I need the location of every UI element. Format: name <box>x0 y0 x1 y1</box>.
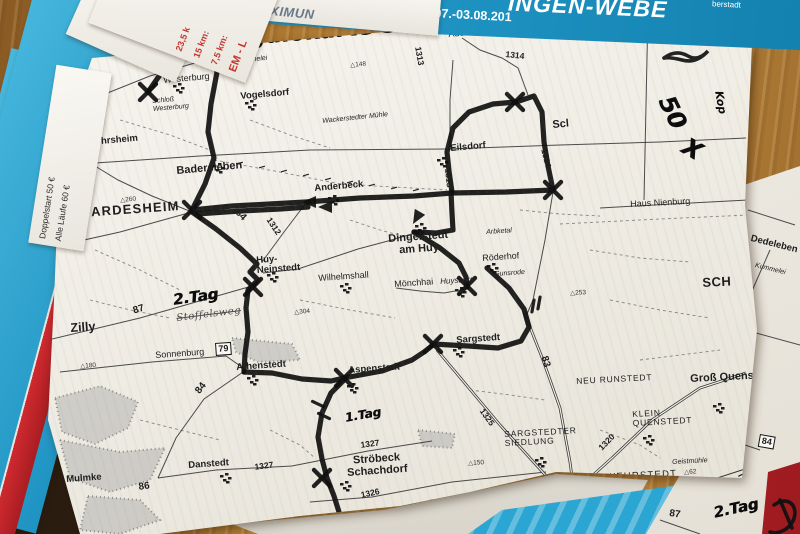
route-x-mark <box>314 470 330 486</box>
map-label-86: 86 <box>138 481 151 493</box>
route-x-mark <box>425 336 441 352</box>
map-label-2-tag: 2.Tag <box>172 286 219 308</box>
map-label-kop: Kop <box>712 90 728 115</box>
town-buildings <box>456 353 460 356</box>
town-buildings <box>440 163 444 166</box>
field-track <box>640 350 720 360</box>
field-track <box>610 300 710 318</box>
town-buildings <box>252 375 256 378</box>
town-buildings <box>420 223 424 226</box>
route-x-mark <box>184 202 200 218</box>
town-buildings <box>350 389 354 392</box>
field-track <box>300 300 395 318</box>
railway-tick <box>259 166 265 168</box>
town-buildings <box>442 157 446 160</box>
town-buildings <box>343 289 347 292</box>
town-buildings <box>453 349 457 352</box>
map-label-zilly: Zilly <box>70 320 96 335</box>
town-buildings <box>220 475 224 478</box>
town-buildings <box>181 87 185 90</box>
town-buildings <box>228 477 232 480</box>
map-label-1326: 1326 <box>360 487 380 500</box>
forest-area <box>232 338 300 362</box>
town-buildings <box>721 407 725 410</box>
town-buildings <box>245 102 249 105</box>
map-label--180: △180 <box>80 362 96 370</box>
map-label--253: △253 <box>570 289 586 297</box>
photo-of-map-on-desk: Alle weiteren Info's und Wettkampfunterl… <box>0 0 800 534</box>
map-label-sargstedt: Sargstedt <box>456 333 500 346</box>
map-label-geistmühle: Geistmühle <box>672 457 708 466</box>
railway-tick <box>778 463 783 466</box>
marker-route <box>414 192 453 233</box>
map-label-1313: 1313 <box>413 46 425 66</box>
route-x-mark <box>507 94 523 110</box>
railway-tick <box>661 502 667 504</box>
town-buildings <box>346 291 350 294</box>
town-buildings <box>331 201 335 204</box>
town-buildings <box>270 278 274 281</box>
town-buildings <box>250 381 254 384</box>
map-label-1327: 1327 <box>254 460 274 472</box>
route-tick-mark <box>319 413 330 418</box>
town-buildings <box>437 159 441 162</box>
town-buildings <box>461 351 465 354</box>
marker-route <box>192 190 553 210</box>
field-track <box>590 250 690 262</box>
route-x-mark <box>314 470 330 486</box>
map-label-1327: 1327 <box>360 438 380 450</box>
town-buildings <box>226 481 230 484</box>
town-buildings <box>540 457 544 460</box>
railway-tick <box>680 493 686 495</box>
town-buildings <box>648 435 652 438</box>
town-buildings <box>223 479 227 482</box>
town-buildings <box>347 385 351 388</box>
map-label--148: △148 <box>350 61 366 69</box>
map-label-sch: SCH <box>702 274 732 290</box>
town-buildings <box>345 481 349 484</box>
map-label-klein-quenstedt: KLEIN QUENSTEDT <box>632 407 693 428</box>
map-label-1312: 1312 <box>264 216 282 237</box>
map-label--304: △304 <box>294 308 310 316</box>
map-label-81: 81 <box>667 483 684 497</box>
town-buildings <box>333 195 337 198</box>
map-label-haus-nienburg: Haus Nienburg <box>630 197 690 210</box>
town-buildings <box>445 161 449 164</box>
major-road-core <box>560 373 746 505</box>
railway-tick <box>758 469 763 472</box>
major-road <box>524 312 577 515</box>
railway-tick <box>325 178 331 180</box>
town-buildings <box>346 489 350 492</box>
map-label-arbketal: Arbketal <box>486 227 512 236</box>
town-buildings <box>643 495 647 498</box>
route-map-sheet: Julokarte Stoffel2.TagStoffelsweg1.Tag50… <box>0 0 800 534</box>
town-buildings <box>651 497 655 500</box>
town-buildings <box>643 437 647 440</box>
town-buildings <box>348 485 352 488</box>
route-tick-mark <box>313 401 324 406</box>
railway-tick <box>738 474 743 477</box>
map-road <box>95 149 447 163</box>
map-label-eilsdorf: Eilsdorf <box>450 141 486 154</box>
town-buildings <box>718 403 722 406</box>
field-track <box>250 120 330 148</box>
town-buildings <box>716 409 720 412</box>
forest-area <box>80 496 160 534</box>
railway-tick <box>303 174 309 176</box>
town-buildings <box>492 263 496 266</box>
field-track <box>520 210 600 216</box>
map-label-1314: 1314 <box>539 148 552 169</box>
route-x-mark <box>507 94 523 110</box>
town-buildings <box>343 487 347 490</box>
route-x-mark <box>245 279 261 295</box>
town-buildings <box>176 89 180 92</box>
map-label-ströbeck-schachdorf: Ströbeck Schachdorf <box>346 452 408 480</box>
town-buildings <box>273 280 277 283</box>
town-buildings <box>255 379 259 382</box>
map-label--260: △260 <box>120 196 136 204</box>
town-buildings <box>225 473 229 476</box>
town-buildings <box>415 225 419 228</box>
town-buildings <box>340 285 344 288</box>
town-buildings <box>649 501 653 504</box>
map-label-1314: 1314 <box>505 50 525 61</box>
town-buildings <box>459 355 463 358</box>
event-banner-location: berstadt <box>712 0 741 10</box>
map-label-scl: Scl <box>552 119 569 132</box>
route-arrow <box>408 209 425 227</box>
forest-area <box>55 386 138 444</box>
town-buildings <box>251 108 255 111</box>
town-buildings <box>463 291 467 294</box>
map-label-badersleben: Badersleben <box>176 160 243 178</box>
railway-line <box>610 456 799 534</box>
map-label-schloß-westerburg: Schloß Westerburg <box>152 95 189 113</box>
map-label-wackerstedter-mühle: Wackerstedter Mühle <box>322 111 388 125</box>
map-road <box>527 192 553 314</box>
map-label-mönchhai: Mönchhai <box>394 277 434 289</box>
town-buildings <box>328 197 332 200</box>
town-buildings <box>648 493 652 496</box>
town-buildings <box>460 287 464 290</box>
map-label-x: X <box>677 134 706 166</box>
map-label-1320: 1320 <box>597 432 617 452</box>
town-buildings <box>423 227 427 230</box>
field-track <box>270 430 315 458</box>
town-buildings <box>458 347 462 350</box>
town-buildings <box>179 91 183 94</box>
route-x-mark <box>545 182 561 198</box>
route-tick-mark <box>538 297 540 309</box>
town-buildings <box>543 461 547 464</box>
map-label-83: 83 <box>538 355 552 369</box>
event-banner-title: INGEN-WEBE <box>507 0 668 23</box>
route-x-mark <box>184 202 200 218</box>
town-buildings <box>275 276 279 279</box>
railway-tick <box>369 184 375 186</box>
map-road <box>310 472 546 502</box>
field-track <box>95 250 180 290</box>
map-label-vogelsdorf: Vogelsdorf <box>240 88 290 102</box>
field-track <box>140 420 220 440</box>
town-buildings <box>253 104 257 107</box>
town-buildings <box>173 85 177 88</box>
field-track <box>470 390 545 400</box>
railway-tick <box>391 187 397 189</box>
town-buildings <box>541 465 545 468</box>
map-label-huy-neinstedt: Huy- Neinstedt <box>256 253 301 276</box>
major-road <box>560 373 746 505</box>
town-buildings <box>651 439 655 442</box>
town-buildings <box>352 383 356 386</box>
map-label--150: △150 <box>468 459 484 467</box>
map-road <box>450 60 453 150</box>
route-x-mark <box>425 336 441 352</box>
town-buildings <box>487 265 491 268</box>
map-label-sonnenburg: Sonnenburg <box>155 348 205 361</box>
town-buildings <box>348 287 352 290</box>
town-buildings <box>458 293 462 296</box>
railway-tick <box>718 480 723 482</box>
marker-route <box>318 380 344 512</box>
railway-tick <box>413 189 419 191</box>
pen-scribble <box>664 51 708 61</box>
town-buildings <box>495 267 499 270</box>
route-tick-mark <box>532 300 534 312</box>
marker-route <box>196 207 308 214</box>
forest-area <box>418 430 455 448</box>
route-x-mark <box>245 279 261 295</box>
map-label-aspenstedt: Aspenstedt <box>348 362 400 376</box>
town-buildings <box>253 383 257 386</box>
town-buildings <box>646 441 650 444</box>
map-label-wehrstedt: WEHRSTEDT <box>606 469 677 483</box>
map-label-dingelstedt-am-huy: Dingelstedt am Huy <box>388 230 449 258</box>
route-arrow <box>318 201 332 213</box>
route-map-wrap: Julokarte Stoffel2.TagStoffelsweg1.Tag50… <box>0 0 800 534</box>
town-buildings <box>646 499 650 502</box>
map-label-athenstedt: Athenstedt <box>236 360 286 374</box>
map-label-danstedt: Danstedt <box>188 458 229 471</box>
map-label-wilhelmshall: Wilhelmshall <box>318 270 369 283</box>
town-buildings <box>455 289 459 292</box>
map-label-87: 87 <box>132 304 146 318</box>
map-label-gunsrode: Gunsrode <box>494 269 525 279</box>
town-buildings <box>353 391 357 394</box>
railway-tick <box>643 512 649 514</box>
map-label--62: △62 <box>684 468 697 476</box>
map-label-84: 84 <box>232 208 247 224</box>
map-label-groß-quenstedt: Groß Quenstedt <box>690 370 774 386</box>
town-buildings <box>713 405 717 408</box>
map-label-neu-runstedt: NEU RUNSTEDT <box>576 373 653 386</box>
railway-tick <box>699 486 704 488</box>
town-buildings <box>336 199 340 202</box>
town-buildings <box>345 283 349 286</box>
map-label-huysburg: Huysburg <box>440 276 475 287</box>
map-label-stoffelsweg: Stoffelsweg <box>176 306 242 325</box>
map-label-84: 84 <box>194 381 209 396</box>
town-buildings <box>538 463 542 466</box>
field-track <box>560 215 748 224</box>
route-arrow <box>302 196 316 208</box>
map-label-röderhof: Röderhof <box>482 251 520 263</box>
town-buildings <box>334 203 338 206</box>
field-track <box>90 300 170 318</box>
town-buildings <box>248 106 252 109</box>
town-buildings <box>247 377 251 380</box>
railway-tick <box>281 170 287 172</box>
map-label-1325: 1325 <box>478 407 497 428</box>
map-road <box>462 38 528 95</box>
town-buildings <box>535 459 539 462</box>
map-label-50: 50 <box>653 92 691 133</box>
field-track <box>430 488 530 500</box>
railway-tick <box>625 522 631 524</box>
map-label-anderbeck: Anderbeck <box>314 180 364 194</box>
map-label-mulmke: Mulmke <box>66 473 102 486</box>
map-label-sargstedter-siedlung: SARGSTEDTER SIEDLUNG <box>504 426 577 448</box>
map-label-1315: 1315 <box>443 168 454 188</box>
town-buildings <box>355 387 359 390</box>
town-buildings <box>461 295 465 298</box>
town-buildings <box>340 483 344 486</box>
map-road <box>620 483 748 534</box>
map-label-79: 79 <box>215 342 232 356</box>
town-buildings <box>443 165 447 168</box>
map-label-1-tag: 1.Tag <box>344 406 382 425</box>
town-buildings <box>719 411 723 414</box>
town-buildings <box>649 443 653 446</box>
route-x-mark <box>545 182 561 198</box>
major-road-core <box>524 312 577 515</box>
